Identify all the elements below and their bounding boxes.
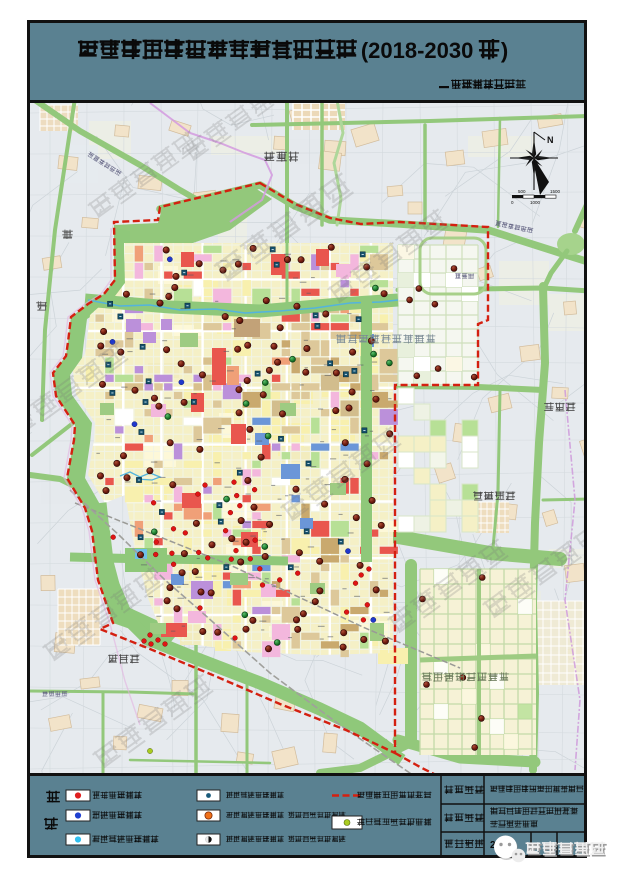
svg-text:(2018-2030: (2018-2030 <box>361 38 474 63</box>
svg-text:500: 500 <box>518 189 526 194</box>
svg-text:N: N <box>547 135 554 145</box>
svg-text:1500: 1500 <box>550 189 561 194</box>
svg-text:): ) <box>501 38 508 63</box>
svg-text:1000: 1000 <box>530 200 541 205</box>
